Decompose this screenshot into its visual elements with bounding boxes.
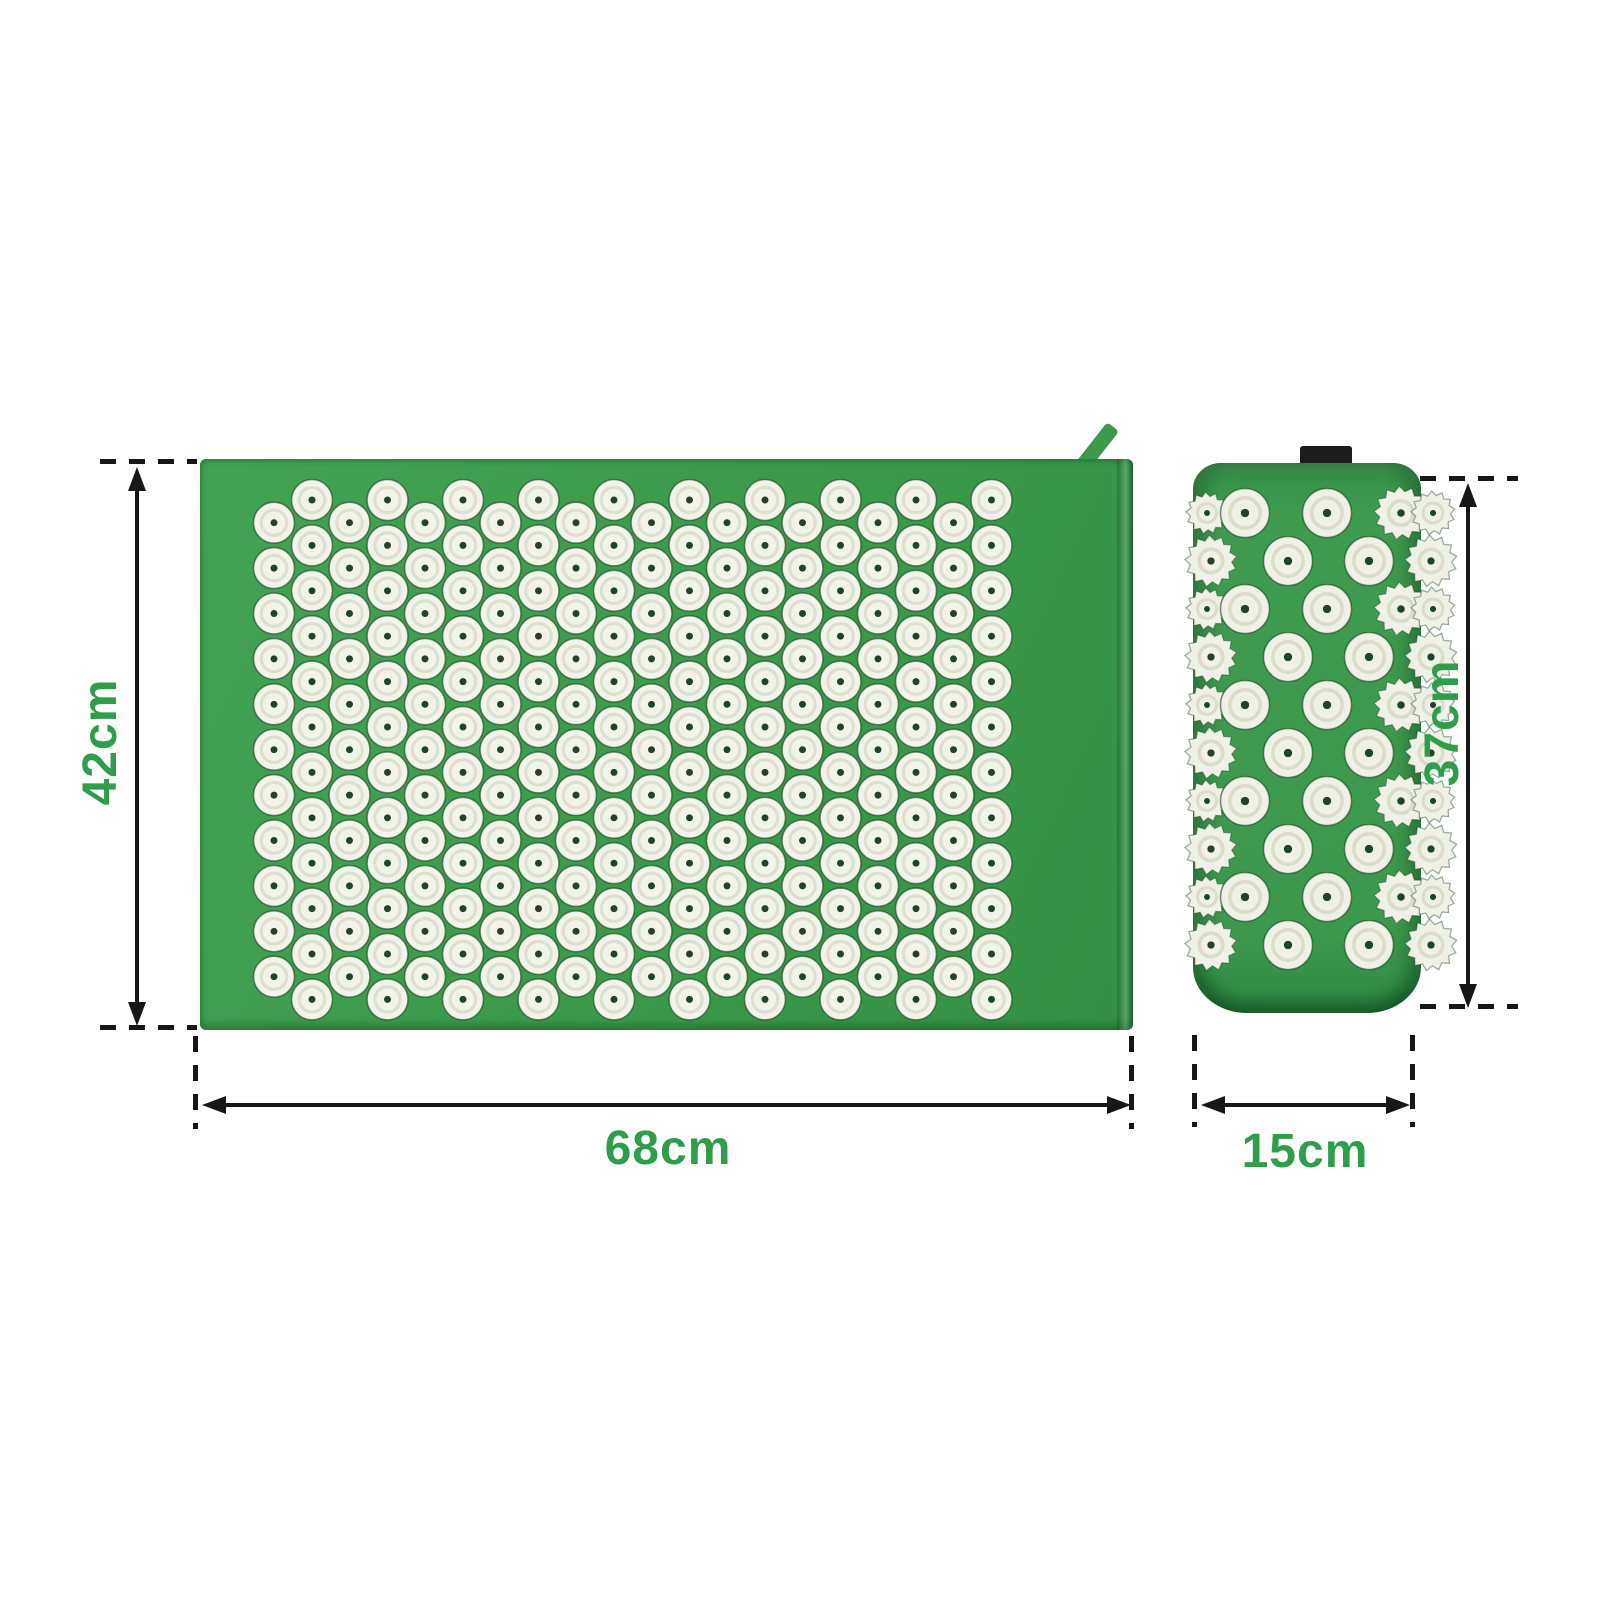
- spike: [405, 820, 446, 861]
- spike: [405, 638, 446, 679]
- spike: [971, 707, 1012, 748]
- spike: [933, 593, 974, 634]
- spike: [254, 956, 295, 997]
- spike: [971, 661, 1012, 702]
- spike: [1221, 873, 1270, 922]
- spike: [556, 593, 597, 634]
- spike: [858, 911, 899, 952]
- spike: [782, 638, 823, 679]
- spike: [1345, 921, 1394, 970]
- spike: [594, 616, 635, 657]
- spike: [367, 570, 408, 611]
- spike: [631, 956, 672, 997]
- spike: [254, 502, 295, 543]
- spike: [556, 865, 597, 906]
- spike: [820, 480, 861, 521]
- spike: [631, 593, 672, 634]
- spike: [820, 661, 861, 702]
- extension-line-top: [100, 459, 197, 464]
- spike: [707, 956, 748, 997]
- spike: [631, 820, 672, 861]
- spike: [329, 956, 370, 997]
- spike: [933, 548, 974, 589]
- spike: [518, 979, 559, 1020]
- spike: [292, 843, 333, 884]
- spike: [858, 820, 899, 861]
- spike: [443, 480, 484, 521]
- mat-width-label: 68cm: [558, 1121, 778, 1175]
- spike: [594, 480, 635, 521]
- spike: [896, 843, 937, 884]
- spike: [329, 729, 370, 770]
- spike: [707, 502, 748, 543]
- spike: [329, 775, 370, 816]
- spike: [971, 934, 1012, 975]
- spike: [707, 865, 748, 906]
- spike: [1264, 633, 1313, 682]
- spike: [858, 502, 899, 543]
- spike: [745, 797, 786, 838]
- spike: [480, 502, 521, 543]
- spike: [480, 775, 521, 816]
- spike: [782, 548, 823, 589]
- spike: [631, 502, 672, 543]
- spike: [1345, 633, 1394, 682]
- spike: [858, 684, 899, 725]
- acupressure-mat: [200, 459, 1133, 1030]
- spike: [329, 638, 370, 679]
- spike: [594, 707, 635, 748]
- spike: [1185, 535, 1237, 587]
- spike: [707, 911, 748, 952]
- spike: [254, 911, 295, 952]
- spike: [1221, 681, 1270, 730]
- spike: [254, 593, 295, 634]
- spike: [820, 616, 861, 657]
- spike: [669, 934, 710, 975]
- spike: [631, 548, 672, 589]
- spike: [745, 934, 786, 975]
- spike: [518, 843, 559, 884]
- spike: [367, 661, 408, 702]
- spike: [782, 502, 823, 543]
- spike: [443, 979, 484, 1020]
- spike: [443, 616, 484, 657]
- spike: [631, 638, 672, 679]
- down-arrowhead-icon: [1459, 984, 1477, 1011]
- spike: [518, 752, 559, 793]
- spike: [1303, 873, 1352, 922]
- spike: [480, 911, 521, 952]
- spike: [480, 820, 521, 861]
- spike: [782, 956, 823, 997]
- spike: [292, 525, 333, 566]
- spike: [594, 934, 635, 975]
- spike: [329, 548, 370, 589]
- spike: [480, 548, 521, 589]
- spike: [556, 548, 597, 589]
- spike: [669, 752, 710, 793]
- spike: [745, 661, 786, 702]
- spike: [292, 797, 333, 838]
- spike: [292, 752, 333, 793]
- spike: [594, 888, 635, 929]
- spike: [933, 684, 974, 725]
- spike: [707, 775, 748, 816]
- spike: [669, 797, 710, 838]
- spike: [820, 752, 861, 793]
- spike: [745, 979, 786, 1020]
- spike: [745, 888, 786, 929]
- spike: [782, 820, 823, 861]
- spike: [858, 638, 899, 679]
- spike: [367, 480, 408, 521]
- spike: [782, 865, 823, 906]
- spike: [1405, 919, 1457, 971]
- spike: [594, 661, 635, 702]
- spike: [518, 480, 559, 521]
- spike: [631, 684, 672, 725]
- spike: [1405, 535, 1457, 587]
- spike: [367, 888, 408, 929]
- spike: [820, 707, 861, 748]
- spike: [1221, 777, 1270, 826]
- right-arrowhead-icon: [1386, 1096, 1413, 1114]
- spike: [1185, 823, 1237, 875]
- spike: [1345, 729, 1394, 778]
- spike: [745, 707, 786, 748]
- spike: [707, 820, 748, 861]
- spike: [254, 820, 295, 861]
- spike: [1185, 919, 1237, 971]
- spike: [556, 684, 597, 725]
- spike: [782, 911, 823, 952]
- spike: [971, 752, 1012, 793]
- spike: [367, 979, 408, 1020]
- spike: [669, 480, 710, 521]
- spike: [329, 865, 370, 906]
- dimension-line: [135, 486, 139, 1004]
- spike: [329, 911, 370, 952]
- spike: [820, 979, 861, 1020]
- spike: [858, 548, 899, 589]
- spike: [933, 820, 974, 861]
- spike: [367, 934, 408, 975]
- extension-line-bottom: [100, 1025, 197, 1030]
- spike: [556, 820, 597, 861]
- extension-line-right: [1129, 1036, 1134, 1129]
- spike: [518, 525, 559, 566]
- spike: [896, 752, 937, 793]
- spike: [480, 729, 521, 770]
- spike: [669, 661, 710, 702]
- spike: [405, 911, 446, 952]
- spike: [631, 775, 672, 816]
- spike: [443, 707, 484, 748]
- spike: [480, 638, 521, 679]
- spike: [367, 797, 408, 838]
- spike: [443, 888, 484, 929]
- spike: [896, 570, 937, 611]
- spike: [556, 775, 597, 816]
- spike: [405, 775, 446, 816]
- spike: [594, 570, 635, 611]
- spike: [896, 616, 937, 657]
- spike: [745, 480, 786, 521]
- spike: [745, 525, 786, 566]
- spike: [1264, 921, 1313, 970]
- spike: [292, 979, 333, 1020]
- dimension-line: [1221, 1103, 1388, 1107]
- spike: [707, 548, 748, 589]
- spike: [254, 775, 295, 816]
- spike: [443, 797, 484, 838]
- spike: [782, 593, 823, 634]
- spike: [933, 729, 974, 770]
- spike: [329, 820, 370, 861]
- spike: [1221, 585, 1270, 634]
- spike: [820, 570, 861, 611]
- spike: [971, 979, 1012, 1020]
- spike: [971, 570, 1012, 611]
- spike: [594, 843, 635, 884]
- spike: [556, 911, 597, 952]
- spike: [443, 934, 484, 975]
- spike: [896, 979, 937, 1020]
- spike: [594, 979, 635, 1020]
- spike: [556, 956, 597, 997]
- spike: [405, 548, 446, 589]
- pillow-height-label: 37cm: [1416, 638, 1468, 808]
- spike: [1345, 825, 1394, 874]
- spike: [631, 865, 672, 906]
- extension-line-left: [193, 1036, 198, 1129]
- product-dimension-diagram: { "product_diagram": { "mat": { "height_…: [0, 0, 1601, 1601]
- spike: [1264, 729, 1313, 778]
- spike: [896, 480, 937, 521]
- spike: [1405, 823, 1457, 875]
- spike: [367, 707, 408, 748]
- spike: [329, 502, 370, 543]
- spike: [782, 684, 823, 725]
- down-arrowhead-icon: [128, 1002, 146, 1029]
- spike: [669, 570, 710, 611]
- spike: [518, 934, 559, 975]
- spike: [820, 797, 861, 838]
- spike: [1185, 631, 1237, 683]
- spike: [1264, 825, 1313, 874]
- extension-line-left: [1192, 1035, 1197, 1127]
- spike: [292, 616, 333, 657]
- spike: [556, 502, 597, 543]
- spike: [971, 480, 1012, 521]
- spike: [556, 729, 597, 770]
- spike: [254, 548, 295, 589]
- spike: [896, 525, 937, 566]
- spike: [858, 775, 899, 816]
- spike: [254, 729, 295, 770]
- spike: [707, 593, 748, 634]
- spike: [556, 638, 597, 679]
- spike: [518, 616, 559, 657]
- spike: [367, 616, 408, 657]
- spike: [933, 502, 974, 543]
- spike: [745, 752, 786, 793]
- spike: [971, 843, 1012, 884]
- spike: [254, 684, 295, 725]
- spike: [896, 934, 937, 975]
- spike: [405, 684, 446, 725]
- spike: [443, 570, 484, 611]
- spike: [518, 797, 559, 838]
- spike: [1303, 777, 1352, 826]
- spike: [933, 956, 974, 997]
- spike: [292, 707, 333, 748]
- dimension-line: [222, 1103, 1109, 1107]
- spike: [443, 843, 484, 884]
- spike: [896, 707, 937, 748]
- spike: [858, 865, 899, 906]
- spike: [1345, 537, 1394, 586]
- spike: [669, 525, 710, 566]
- spike: [480, 593, 521, 634]
- spike: [669, 979, 710, 1020]
- spike: [292, 480, 333, 521]
- spike: [971, 525, 1012, 566]
- spike: [594, 525, 635, 566]
- spike: [858, 729, 899, 770]
- spike: [405, 865, 446, 906]
- spike: [1221, 489, 1270, 538]
- spike: [292, 934, 333, 975]
- spike: [782, 729, 823, 770]
- spike: [669, 843, 710, 884]
- spike: [518, 707, 559, 748]
- spike: [971, 888, 1012, 929]
- spike: [820, 888, 861, 929]
- spike: [1264, 537, 1313, 586]
- spike: [518, 661, 559, 702]
- spike: [480, 956, 521, 997]
- spike: [933, 865, 974, 906]
- spike: [292, 888, 333, 929]
- spike: [329, 593, 370, 634]
- spike: [443, 752, 484, 793]
- spike: [858, 956, 899, 997]
- spike: [405, 502, 446, 543]
- spike: [782, 775, 823, 816]
- spike: [631, 729, 672, 770]
- spike: [405, 956, 446, 997]
- spike: [933, 775, 974, 816]
- spike: [594, 752, 635, 793]
- mat-height-label: 42cm: [74, 657, 126, 827]
- spike: [971, 616, 1012, 657]
- spike: [254, 865, 295, 906]
- spike: [820, 934, 861, 975]
- spike: [896, 888, 937, 929]
- spike: [367, 525, 408, 566]
- spike: [745, 570, 786, 611]
- pillow-spikes-pattern: [1193, 463, 1421, 1013]
- pillow-width-label: 15cm: [1195, 1124, 1415, 1178]
- spike: [971, 797, 1012, 838]
- spike: [367, 752, 408, 793]
- spike: [669, 707, 710, 748]
- spike: [1303, 585, 1352, 634]
- spike: [896, 797, 937, 838]
- spike: [1303, 489, 1352, 538]
- spike: [443, 525, 484, 566]
- spike: [480, 865, 521, 906]
- spike: [405, 593, 446, 634]
- spike: [707, 729, 748, 770]
- spike: [820, 843, 861, 884]
- spike: [631, 911, 672, 952]
- spike: [933, 638, 974, 679]
- spike: [745, 616, 786, 657]
- spike: [858, 593, 899, 634]
- spike: [292, 570, 333, 611]
- spike: [367, 843, 408, 884]
- spike: [480, 684, 521, 725]
- spike: [745, 843, 786, 884]
- spike: [518, 570, 559, 611]
- spike: [896, 661, 937, 702]
- mat-spikes-pattern: [200, 459, 1133, 1030]
- spike: [594, 797, 635, 838]
- spike: [707, 638, 748, 679]
- spike: [669, 888, 710, 929]
- spike: [669, 616, 710, 657]
- spike: [405, 729, 446, 770]
- spike: [518, 888, 559, 929]
- spike: [1185, 727, 1237, 779]
- spike: [933, 911, 974, 952]
- right-arrowhead-icon: [1107, 1096, 1134, 1114]
- spike: [820, 525, 861, 566]
- spike: [329, 684, 370, 725]
- spike: [707, 684, 748, 725]
- spike: [1303, 681, 1352, 730]
- acupressure-pillow: [1193, 463, 1421, 1013]
- spike: [443, 661, 484, 702]
- spike: [292, 661, 333, 702]
- spike: [254, 638, 295, 679]
